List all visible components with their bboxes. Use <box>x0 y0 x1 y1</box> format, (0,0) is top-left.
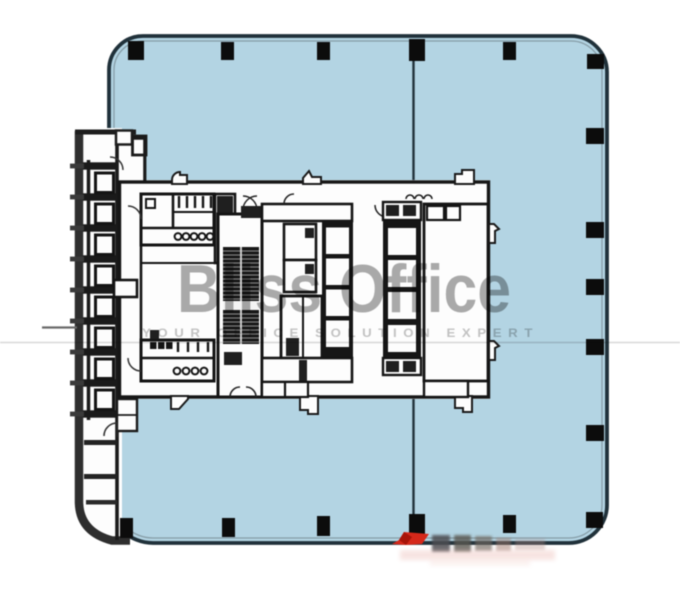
svg-text:YOUR OFFICE SOLUTION EXPERT: YOUR OFFICE SOLUTION EXPERT <box>142 326 539 340</box>
svg-text:Bliss Office: Bliss Office <box>177 251 511 327</box>
